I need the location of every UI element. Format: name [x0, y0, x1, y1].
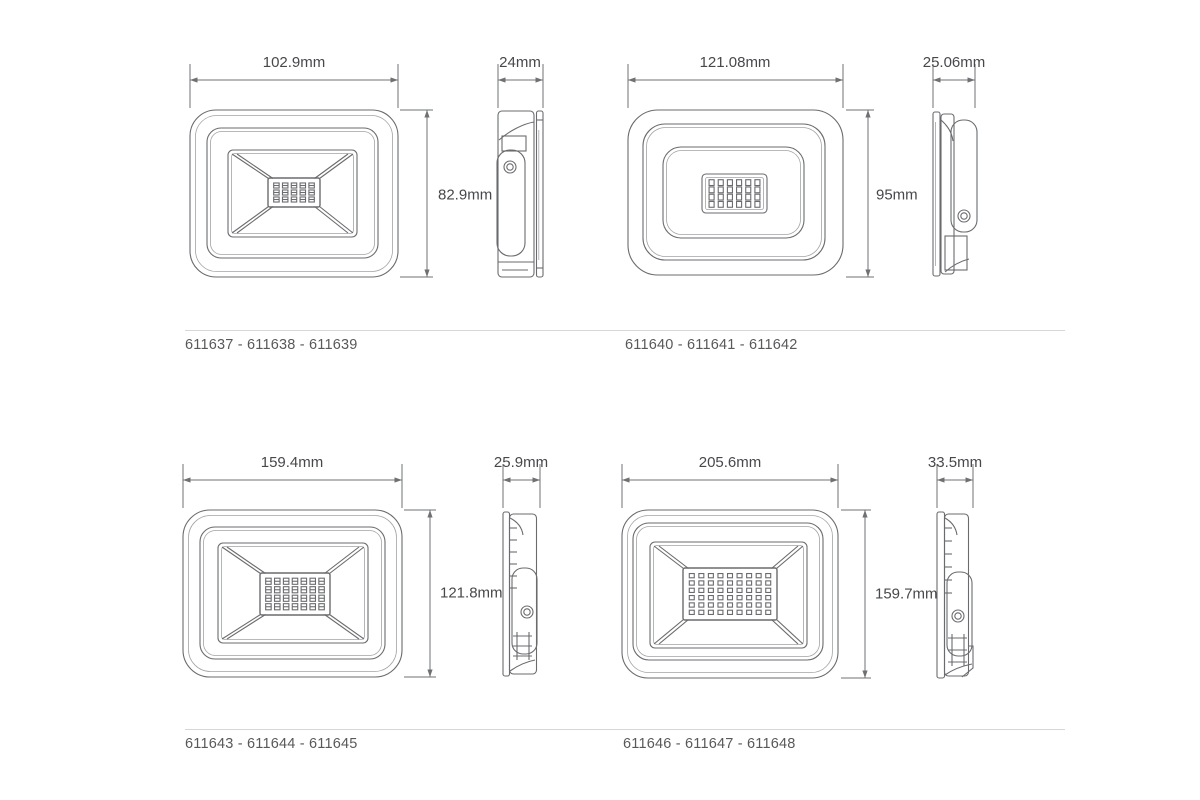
- mounting-bracket: [951, 120, 977, 232]
- front-view: [183, 510, 402, 677]
- led-panel: [683, 568, 777, 620]
- product-codes: 611643 - 611644 - 611645: [185, 736, 358, 752]
- product-codes: 611646 - 611647 - 611648: [623, 736, 796, 752]
- side-width-label: 33.5mm: [928, 454, 982, 471]
- led-grid: [689, 574, 770, 615]
- side-view: [937, 512, 973, 678]
- heatsink-ribs: [510, 528, 518, 588]
- front-width-label: 121.08mm: [700, 54, 771, 71]
- front-glass-edge: [933, 112, 940, 276]
- outer-housing: [190, 110, 398, 277]
- pivot-screw-icon: [958, 210, 970, 222]
- housing-contour: [510, 518, 523, 535]
- height-dimension: [404, 510, 436, 677]
- front-height-label: 159.7mm: [875, 586, 938, 603]
- reflector-facets: [232, 154, 353, 233]
- front-glass-edge: [937, 512, 945, 678]
- face-plate: [663, 147, 804, 238]
- pivot-screw-icon: [952, 610, 964, 622]
- bracket-ladder: [948, 634, 967, 666]
- side-view: [933, 112, 977, 276]
- housing-contour: [945, 518, 957, 535]
- housing-body: [945, 514, 969, 676]
- front-glass-edge: [503, 512, 510, 676]
- bracket-ladder: [513, 632, 532, 660]
- side-width-label: 24mm: [499, 54, 541, 71]
- front-view: [190, 110, 398, 277]
- inner-housing: [643, 124, 825, 260]
- housing-contour: [499, 122, 534, 140]
- divider-rule-top: [185, 330, 1065, 331]
- bracket-foot: [945, 236, 967, 270]
- product-codes: 611637 - 611638 - 611639: [185, 337, 358, 353]
- led-grid: [266, 578, 325, 610]
- heatsink-ribs: [945, 528, 953, 593]
- drawing-panel-top-right: 121.08mm 25.06mm 95mm: [600, 40, 1060, 340]
- front-view: [622, 510, 838, 678]
- mounting-bracket: [497, 150, 525, 256]
- front-glass-edge: [537, 111, 544, 277]
- front-view: [628, 110, 843, 275]
- led-grid: [274, 183, 315, 202]
- side-width-label: 25.9mm: [494, 454, 548, 471]
- technical-drawing: [150, 40, 610, 340]
- front-width-label: 102.9mm: [263, 54, 326, 71]
- pivot-screw-icon: [521, 606, 533, 618]
- led-panel: [260, 573, 330, 615]
- floodlight-dimension-sheet: 102.9mm 24mm 82.9mm: [0, 0, 1200, 800]
- technical-drawing: [150, 440, 610, 740]
- front-height-label: 82.9mm: [438, 187, 492, 204]
- reflector-frame: [228, 150, 357, 237]
- side-width-label: 25.06mm: [923, 54, 986, 71]
- technical-drawing: [600, 40, 1060, 340]
- front-width-label: 159.4mm: [261, 454, 324, 471]
- side-view: [497, 111, 543, 277]
- drawing-panel-bottom-right: 205.6mm 33.5mm 159.7mm: [600, 440, 1060, 740]
- front-height-label: 121.8mm: [440, 585, 503, 602]
- drawing-panel-top-left: 102.9mm 24mm 82.9mm: [150, 40, 610, 340]
- product-codes: 611640 - 611641 - 611642: [625, 337, 798, 353]
- technical-drawing: [600, 440, 1060, 740]
- divider-rule-bottom: [185, 729, 1065, 730]
- pivot-screw-icon: [504, 161, 516, 173]
- drawing-panel-bottom-left: 159.4mm 25.9mm 121.8mm: [150, 440, 610, 740]
- height-dimension: [400, 110, 433, 277]
- led-grid: [709, 180, 760, 208]
- side-view: [503, 512, 537, 676]
- outer-housing: [622, 510, 838, 678]
- bracket-hinge-block: [502, 136, 526, 151]
- outer-housing: [628, 110, 843, 275]
- front-height-label: 95mm: [876, 187, 918, 204]
- height-dimension: [846, 110, 874, 277]
- outer-housing: [183, 510, 402, 677]
- housing-body: [510, 514, 537, 674]
- front-width-label: 205.6mm: [699, 454, 762, 471]
- height-dimension: [841, 510, 871, 678]
